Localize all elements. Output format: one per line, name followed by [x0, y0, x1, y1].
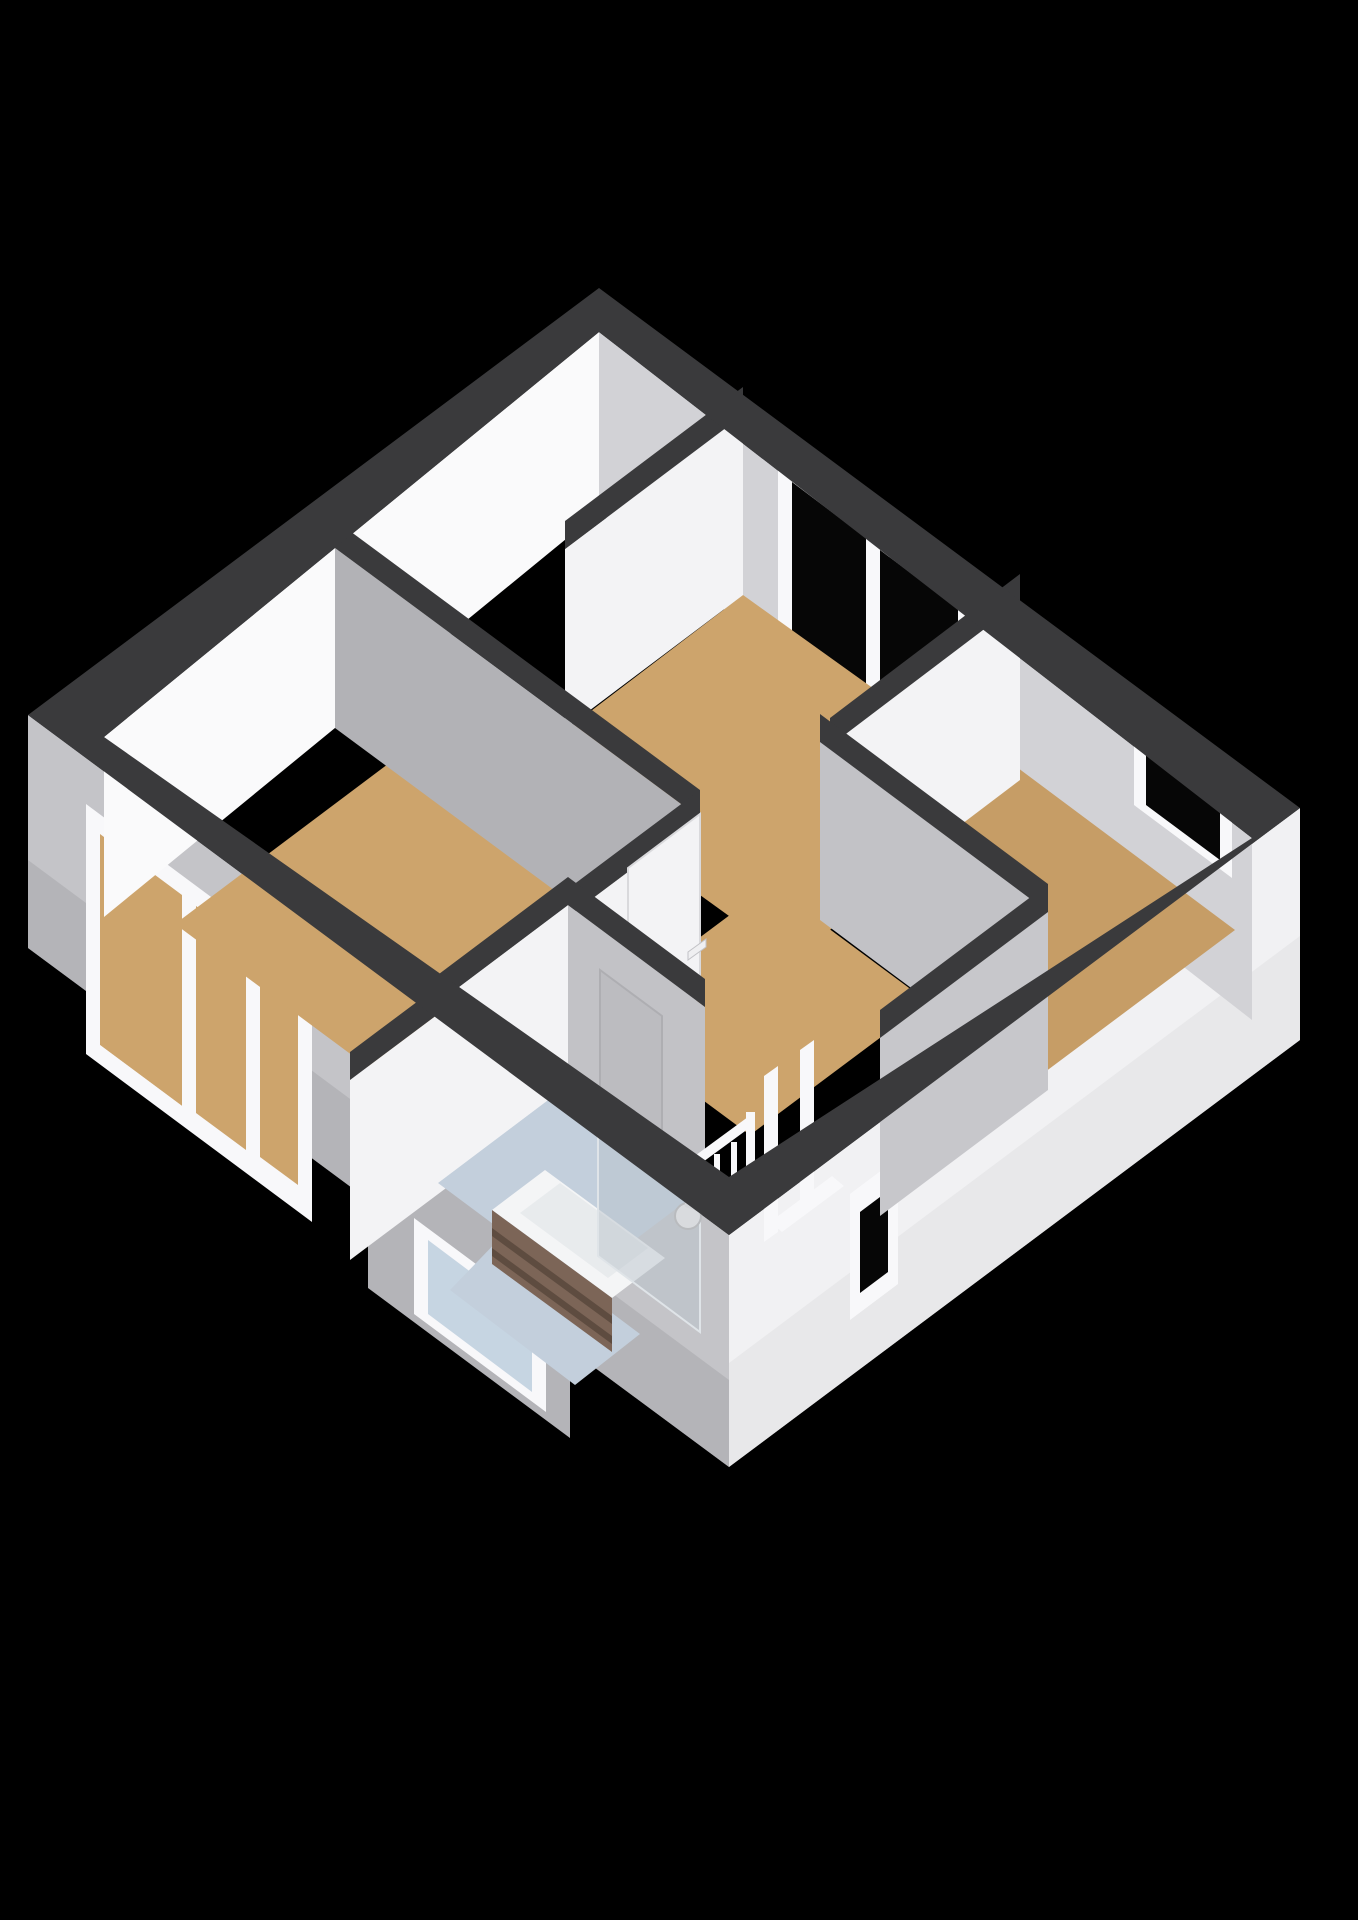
floorplan-3d-canvas: [0, 0, 1358, 1920]
floorplan-3d-render: [0, 0, 1358, 1920]
